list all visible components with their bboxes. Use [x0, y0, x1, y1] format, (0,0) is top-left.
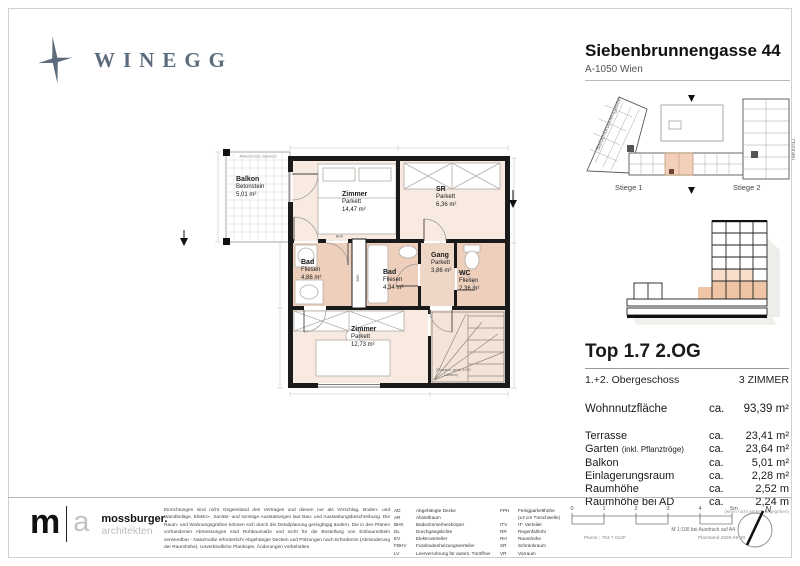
- room-floor: Parkett: [351, 334, 376, 342]
- footer-divider: [8, 497, 792, 498]
- architect-subtitle: architekten: [101, 525, 167, 537]
- section-highlight: [698, 269, 767, 299]
- living-area-label: Wohnnutzfläche: [585, 403, 709, 415]
- room-label-zimmer-2: Zimmer Parkett 12,73 m²: [351, 326, 376, 349]
- bhk-label: BHK: [336, 235, 344, 239]
- unit-floor: 1.+2. Obergeschoss: [585, 374, 679, 386]
- room-floor: Parkett: [436, 194, 456, 202]
- legend-abbr: AD: [394, 507, 416, 514]
- row-value: 23,41 m²: [731, 430, 789, 443]
- site-plan: Siebenbrunnengasse Hoftrakt Stiege 1 Sti…: [585, 93, 795, 205]
- site-unit-highlight: [665, 153, 693, 175]
- unit-room-count: 3 ZIMMER: [739, 374, 789, 386]
- room-floor: Betonstein: [236, 184, 264, 192]
- living-area-row: Wohnnutzfläche ca. 93,39 m²: [585, 403, 789, 415]
- ca-prefix: ca.: [709, 457, 731, 470]
- room-name: Zimmer: [351, 326, 376, 334]
- room-area: 3,86 m²: [431, 268, 451, 276]
- winegg-wordmark: WINEGG: [94, 48, 233, 73]
- legend-desc: Fussbodenheizungsverteiler: [416, 542, 498, 549]
- room-area: 4,34 m²: [383, 285, 403, 293]
- table-row: Balkon ca. 5,01 m²: [585, 457, 789, 470]
- balcony-note: Absturzschutz raumhoch: [239, 155, 276, 159]
- architect-logo-m: m: [30, 506, 60, 538]
- room-label-gang: Gang Parkett 3,86 m²: [431, 252, 451, 275]
- bhk-label-vertical: BHK: [356, 274, 360, 282]
- section-shadow: [767, 238, 780, 317]
- legend-abbr: EV: [394, 535, 416, 542]
- stiege-1-label: Stiege 1: [615, 183, 643, 192]
- stair-note-line2: Luftraum): [444, 373, 458, 377]
- legend-abbr: SR: [500, 542, 518, 549]
- north-label: N: [765, 504, 772, 514]
- room-label-sr: SR Parkett 6,36 m²: [436, 186, 456, 209]
- unit-title: Top 1.7 2.OG: [585, 341, 789, 369]
- row-value: 2,52 m: [731, 483, 789, 496]
- legend-row: ADAbgehängte Decke: [394, 507, 498, 514]
- room-area: 5,01 m²: [236, 192, 264, 200]
- scale-tick: 3: [666, 506, 669, 512]
- row-label: Einlagerungsraum: [585, 470, 709, 483]
- shaft: [352, 239, 366, 308]
- room-area: 12,73 m²: [351, 342, 376, 350]
- room-floor: Parkett: [431, 260, 451, 268]
- room-area: 6,36 m²: [436, 202, 456, 210]
- room-label-wc: WC Fliesen 2,36 m²: [459, 270, 479, 293]
- legend-abbr: DL: [394, 528, 416, 535]
- row-value: 5,01 m²: [731, 457, 789, 470]
- legend-abbr: FPH: [500, 507, 518, 514]
- room-name: WC: [459, 270, 479, 278]
- room-name: Bad: [301, 259, 321, 267]
- ca-prefix: ca.: [709, 470, 731, 483]
- table-row: Einlagerungsraum ca. 2,28 m²: [585, 470, 789, 483]
- legend-desc: Leerverrohrung für autom. Türöffner: [416, 550, 498, 557]
- legal-text: Einrichtungen sind nicht Gegenstand des …: [164, 507, 390, 551]
- room-name: Gang: [431, 252, 451, 260]
- winegg-logo: WINEGG: [38, 36, 233, 84]
- scale-tick-labels: 0 1 2 3 4 5m: [570, 506, 738, 512]
- legend-desc: Abgehängte Decke: [416, 507, 498, 514]
- section-ground: [627, 315, 767, 318]
- ca-prefix: ca.: [709, 430, 731, 443]
- legend-abbr: RR: [500, 528, 518, 535]
- scale-bar-lines: [572, 513, 732, 524]
- row-label: Garten (inkl. Pflanztröge): [585, 443, 709, 457]
- legend-abbr: AR: [394, 514, 416, 521]
- legend-abbr: VR: [500, 550, 518, 557]
- scale-tick: 0: [570, 506, 573, 512]
- legend-row: ARAbstellraum: [394, 514, 498, 521]
- room-name: Zimmer: [342, 191, 367, 199]
- north-needle: [747, 511, 763, 545]
- abbreviation-legend-col1: ADAbgehängte Decke ARAbstellraum BHKBade…: [394, 507, 498, 557]
- row-label: Terrasse: [585, 430, 709, 443]
- table-row: Terrasse ca. 23,41 m²: [585, 430, 789, 443]
- legend-abbr: [500, 514, 518, 521]
- unit-subtitle-row: 1.+2. Obergeschoss 3 ZIMMER: [585, 374, 789, 386]
- scale-note: M 1:100 bei Ausdruck auf A4: [671, 527, 735, 533]
- room-name: Balkon: [236, 176, 264, 184]
- room-floor: Fliesen: [459, 278, 479, 286]
- legend-desc: Vorraum: [518, 550, 578, 557]
- scale-tick: 1: [602, 506, 605, 512]
- room-name: Bad: [383, 269, 403, 277]
- room-floor: Parkett: [342, 199, 367, 207]
- stiege-2-label: Stiege 2: [733, 183, 761, 192]
- section-shadow-2: [632, 317, 777, 325]
- street-label-right: Hoftrakt: [790, 139, 795, 160]
- legend-abbr: RH: [500, 535, 518, 542]
- scale-tick: 4: [698, 506, 701, 512]
- row-value: 23,64 m²: [731, 443, 789, 456]
- row-value: 2,28 m²: [731, 470, 789, 483]
- table-row: Garten (inkl. Pflanztröge) ca. 23,64 m²: [585, 443, 789, 457]
- room-name: SR: [436, 186, 456, 194]
- project-address: A-1050 Wien: [585, 64, 790, 81]
- legend-desc: Elektroverteiler: [416, 535, 498, 542]
- ca-prefix: ca.: [709, 483, 731, 496]
- row-label: Raumhöhe: [585, 483, 709, 496]
- room-floor: Fliesen: [301, 267, 321, 275]
- legend-row: FBHVFussbodenheizungsverteiler: [394, 542, 498, 549]
- architect-logo-a: a: [73, 506, 89, 538]
- room-area: 14,47 m²: [342, 207, 367, 215]
- north-arrow: N: [731, 502, 781, 554]
- row-label: Balkon: [585, 457, 709, 470]
- project-title: Siebenbrunnengasse 44: [585, 41, 790, 61]
- room-floor: Fliesen: [383, 277, 403, 285]
- winegg-star-icon: [38, 36, 72, 84]
- room-label-balkon: Balkon Betonstein 5,01 m²: [236, 176, 264, 199]
- plan-number: Plannr.: 763 7 012F: [584, 536, 626, 541]
- section-roof: [712, 220, 767, 222]
- legend-row: DLDurchgangslichte: [394, 528, 498, 535]
- legend-abbr: FBHV: [394, 542, 416, 549]
- stair-note-line1: (Stauraum, gesch. in EG: [436, 368, 471, 372]
- legend-row: VRVorraum: [500, 550, 578, 557]
- architect-logo: m a mossburger. architekten: [30, 506, 167, 542]
- architect-logo-bar: [66, 506, 67, 542]
- legend-abbr: BHK: [394, 521, 416, 528]
- legend-desc: Badezimmerheizkörper: [416, 521, 498, 528]
- architect-name-block: mossburger. architekten: [101, 513, 167, 537]
- room-area: 2,36 m²: [459, 286, 479, 294]
- table-row: Raumhöhe ca. 2,52 m: [585, 483, 789, 496]
- project-header: Siebenbrunnengasse 44 A-1050 Wien: [585, 41, 790, 81]
- legend-desc: Abstellraum: [416, 514, 498, 521]
- unit-info-panel: Top 1.7 2.OG 1.+2. Obergeschoss 3 ZIMMER…: [585, 341, 789, 514]
- section-structure: [627, 221, 767, 315]
- room-label-zimmer-1: Zimmer Parkett 14,47 m²: [342, 191, 367, 214]
- ca-prefix: ca.: [709, 443, 731, 456]
- room-area: 4,86 m²: [301, 275, 321, 283]
- legend-abbr: ITV: [500, 521, 518, 528]
- living-area-value: 93,39 m²: [731, 403, 789, 415]
- legend-row: EVElektroverteiler: [394, 535, 498, 542]
- legend-row: BHKBadezimmerheizkörper: [394, 521, 498, 528]
- building-section: [612, 213, 782, 338]
- legend-desc: Schrankraum: [518, 542, 578, 549]
- row-label-main: Garten: [585, 443, 619, 455]
- room-label-bad-2: Bad Fliesen 4,34 m²: [383, 269, 403, 292]
- room-label-bad-1: Bad Fliesen 4,86 m²: [301, 259, 321, 282]
- row-label-note: (inkl. Pflanztröge): [622, 445, 684, 454]
- legend-abbr: LV: [394, 550, 416, 557]
- legend-row: LVLeerverrohrung für autom. Türöffner: [394, 550, 498, 557]
- scale-tick: 2: [634, 506, 637, 512]
- architect-name: mossburger.: [101, 513, 167, 525]
- legend-desc: Durchgangslichte: [416, 528, 498, 535]
- legend-row: SRSchrankraum: [500, 542, 578, 549]
- ca-prefix: ca.: [709, 403, 731, 415]
